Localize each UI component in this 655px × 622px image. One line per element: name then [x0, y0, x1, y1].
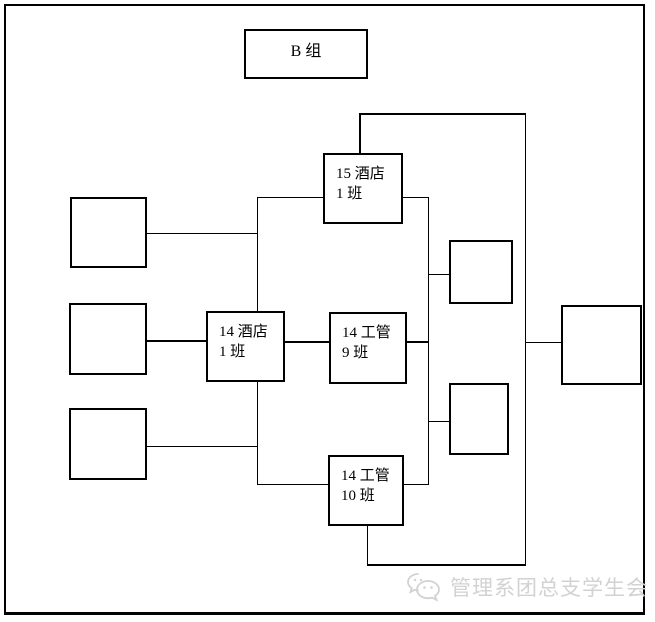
connector-line-gg9-right [407, 341, 429, 343]
connector-line-left-middle-branch [147, 340, 206, 342]
diagram-canvas: B 组 15 酒店 1 班 14 酒店 1 班 14 工管 9 班 14 工管 … [0, 0, 655, 622]
node-b-group-label: B 组 [291, 42, 322, 62]
node-left-middle [69, 303, 147, 375]
wechat-icon [404, 571, 444, 602]
node-hotel-14-1-line2: 1 班 [219, 342, 283, 362]
connector-line-left-top-branch [147, 233, 257, 235]
node-hotel-14-1: 14 酒店 1 班 [206, 311, 285, 382]
node-gongguan-14-9-line2: 9 班 [342, 343, 405, 363]
node-right-upper [449, 240, 513, 304]
node-gongguan-14-9: 14 工管 9 班 [329, 312, 407, 384]
connector-line-to-far-right [525, 342, 561, 344]
node-left-top [70, 197, 147, 268]
node-gongguan-14-10-line2: 10 班 [341, 486, 402, 506]
connector-line-hotel15-right [403, 197, 429, 199]
connector-line-to-gg10-left [257, 484, 329, 486]
node-b-group: B 组 [244, 29, 368, 79]
connector-line-to-right-upper [428, 274, 449, 276]
connector-line-left-bottom-branch [147, 446, 257, 448]
connector-line-to-right-lower [428, 421, 449, 423]
connector-line-bracket-right-vertical [525, 113, 527, 565]
connector-line-bracket-top-horizontal [359, 113, 526, 115]
watermark: 管理系团总支学生会 [404, 571, 648, 602]
connector-line-to-hotel15-left [257, 197, 324, 199]
connector-line-bracket-top-vertical [359, 113, 361, 153]
node-gongguan-14-10: 14 工管 10 班 [328, 455, 404, 526]
connector-line-bracket-bottom-vertical [367, 526, 369, 565]
node-hotel-14-1-line1: 14 酒店 [219, 322, 283, 342]
connector-line-bracket-bottom-horizontal [367, 564, 527, 566]
node-hotel-15-1: 15 酒店 1 班 [323, 153, 403, 224]
node-gongguan-14-9-line1: 14 工管 [342, 323, 405, 343]
node-right-lower [449, 383, 509, 455]
node-gongguan-14-10-line1: 14 工管 [341, 466, 402, 486]
watermark-text: 管理系团总支学生会 [450, 572, 648, 602]
connector-line-hotel14-to-gg9 [285, 341, 329, 343]
node-far-right [561, 305, 642, 385]
connector-line-gg10-right [404, 484, 429, 486]
node-left-bottom [69, 408, 147, 480]
node-hotel-15-1-line1: 15 酒店 [336, 164, 401, 184]
node-hotel-15-1-line2: 1 班 [336, 184, 401, 204]
